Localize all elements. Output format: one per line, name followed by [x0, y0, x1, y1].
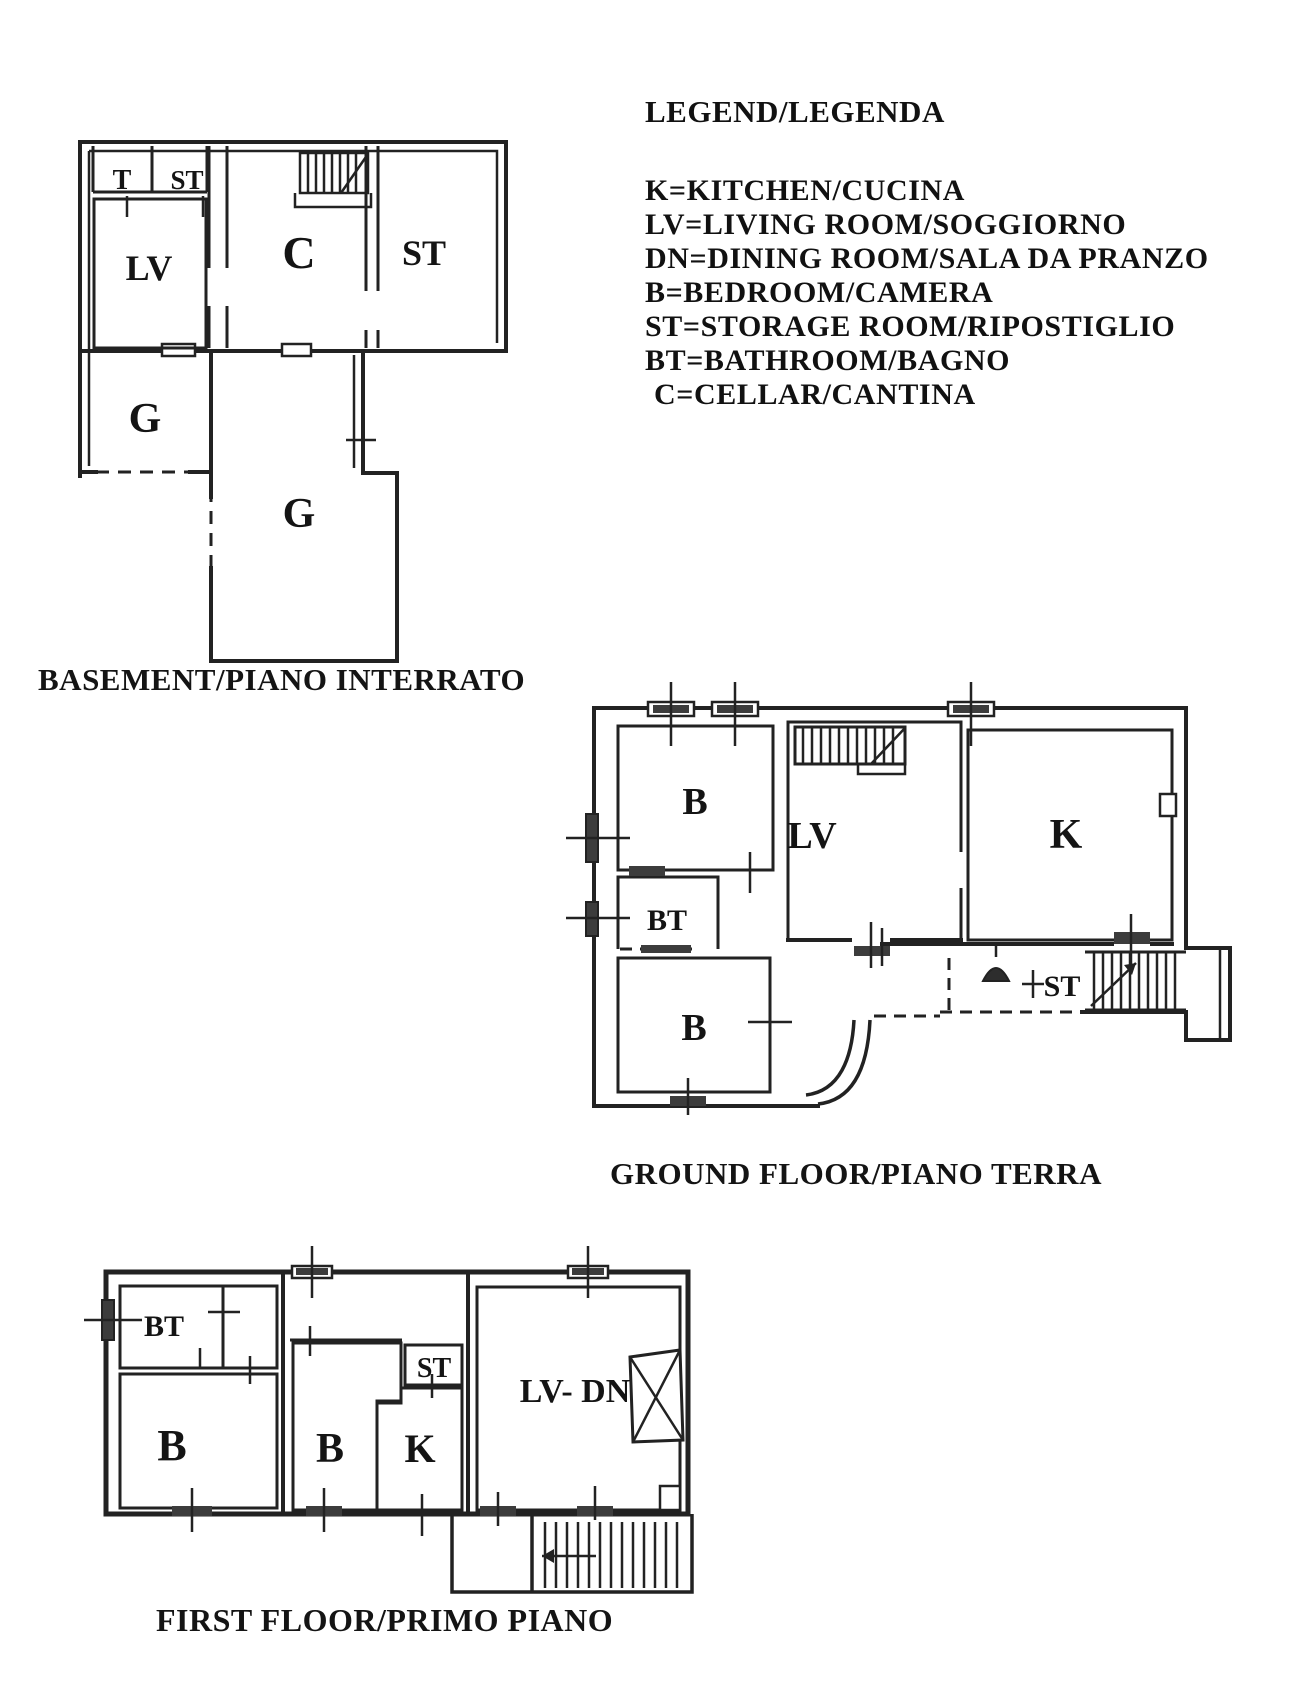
terrace-curved-wall	[806, 1020, 870, 1104]
room-label-bt: BT	[647, 904, 687, 937]
floor-plan-document: LEGEND/LEGENDA K=KITCHEN/CUCINA LV=LIVIN…	[0, 0, 1302, 1702]
ground-floor-caption: GROUND FLOOR/PIANO TERRA	[610, 1156, 1102, 1192]
basement-door-ticks	[127, 196, 376, 440]
room-label-st: ST	[417, 1353, 452, 1384]
first-room-labels: BT B B ST K LV- DN	[144, 1310, 631, 1472]
room-label-b-left: B	[157, 1421, 186, 1470]
basement-staircase-icon	[295, 153, 371, 207]
legend-item: LV=LIVING ROOM/SOGGIORNO	[645, 208, 1245, 242]
room-label-g-left: G	[129, 396, 162, 442]
legend-item: DN=DINING ROOM/SALA DA PRANZO	[645, 242, 1245, 276]
lamp-icon	[983, 944, 1009, 981]
window-marker	[648, 682, 694, 746]
st-door-marker	[1022, 970, 1044, 998]
ground-room-labels: B BT B LV K ST	[647, 781, 1083, 1049]
legend-item: ST=STORAGE ROOM/RIPOSTIGLIO	[645, 310, 1245, 344]
window-marker	[948, 682, 994, 746]
room-label-b-bottom: B	[681, 1007, 706, 1049]
exterior-staircase-icon	[1085, 952, 1186, 1010]
legend: LEGEND/LEGENDA K=KITCHEN/CUCINA LV=LIVIN…	[645, 94, 1245, 412]
ground-floor-plan-drawing: B BT B LV K ST	[540, 645, 1250, 1115]
furniture-icon	[630, 1350, 683, 1442]
lv-staircase-icon	[795, 727, 905, 774]
legend-item: B=BEDROOM/CAMERA	[645, 276, 1245, 310]
room-label-b-mid: B	[316, 1426, 344, 1472]
room-label-lv: LV	[787, 815, 837, 857]
lvdn-wall-notch	[660, 1486, 680, 1510]
room-label-st: ST	[402, 233, 446, 273]
basement-room-walls	[93, 146, 378, 348]
room-label-lv: LV	[126, 248, 173, 288]
legend-item: K=KITCHEN/CUCINA	[645, 174, 1245, 208]
first-floor-plan-drawing: BT B B ST K LV- DN	[60, 1240, 720, 1615]
room-label-t: T	[113, 165, 132, 196]
legend-item: BT=BATHROOM/BAGNO	[645, 344, 1245, 378]
room-label-bt: BT	[144, 1310, 184, 1343]
window-marker	[566, 814, 630, 862]
basement-plan-drawing: T ST LV C ST G G	[60, 130, 540, 690]
room-label-k: K	[1050, 812, 1083, 858]
room-label-st-small: ST	[170, 165, 203, 195]
room-label-lv-dn: LV- DN	[520, 1373, 631, 1410]
room-label-k: K	[404, 1426, 435, 1471]
ground-window-markers	[566, 682, 994, 936]
window-marker	[566, 902, 630, 936]
window-marker	[568, 1246, 608, 1298]
room-label-b-top: B	[682, 781, 707, 823]
legend-item: C=CELLAR/CANTINA	[645, 378, 1245, 412]
room-label-g-main: G	[283, 491, 316, 537]
room-label-st: ST	[1044, 970, 1081, 1003]
basement-dashed-walls	[96, 472, 211, 568]
window-marker	[84, 1300, 142, 1340]
window-marker	[712, 682, 758, 746]
kitchen-wall-notch	[1160, 794, 1176, 816]
first-floor-caption: FIRST FLOOR/PRIMO PIANO	[156, 1602, 613, 1639]
window-marker	[292, 1246, 332, 1298]
basement-caption: BASEMENT/PIANO INTERRATO	[38, 662, 525, 698]
legend-items: K=KITCHEN/CUCINA LV=LIVING ROOM/SOGGIORN…	[645, 174, 1245, 412]
first-staircase-icon	[452, 1514, 692, 1592]
ground-room-walls	[618, 722, 1220, 1092]
room-label-c: C	[282, 227, 315, 278]
legend-title: LEGEND/LEGENDA	[645, 94, 1245, 130]
